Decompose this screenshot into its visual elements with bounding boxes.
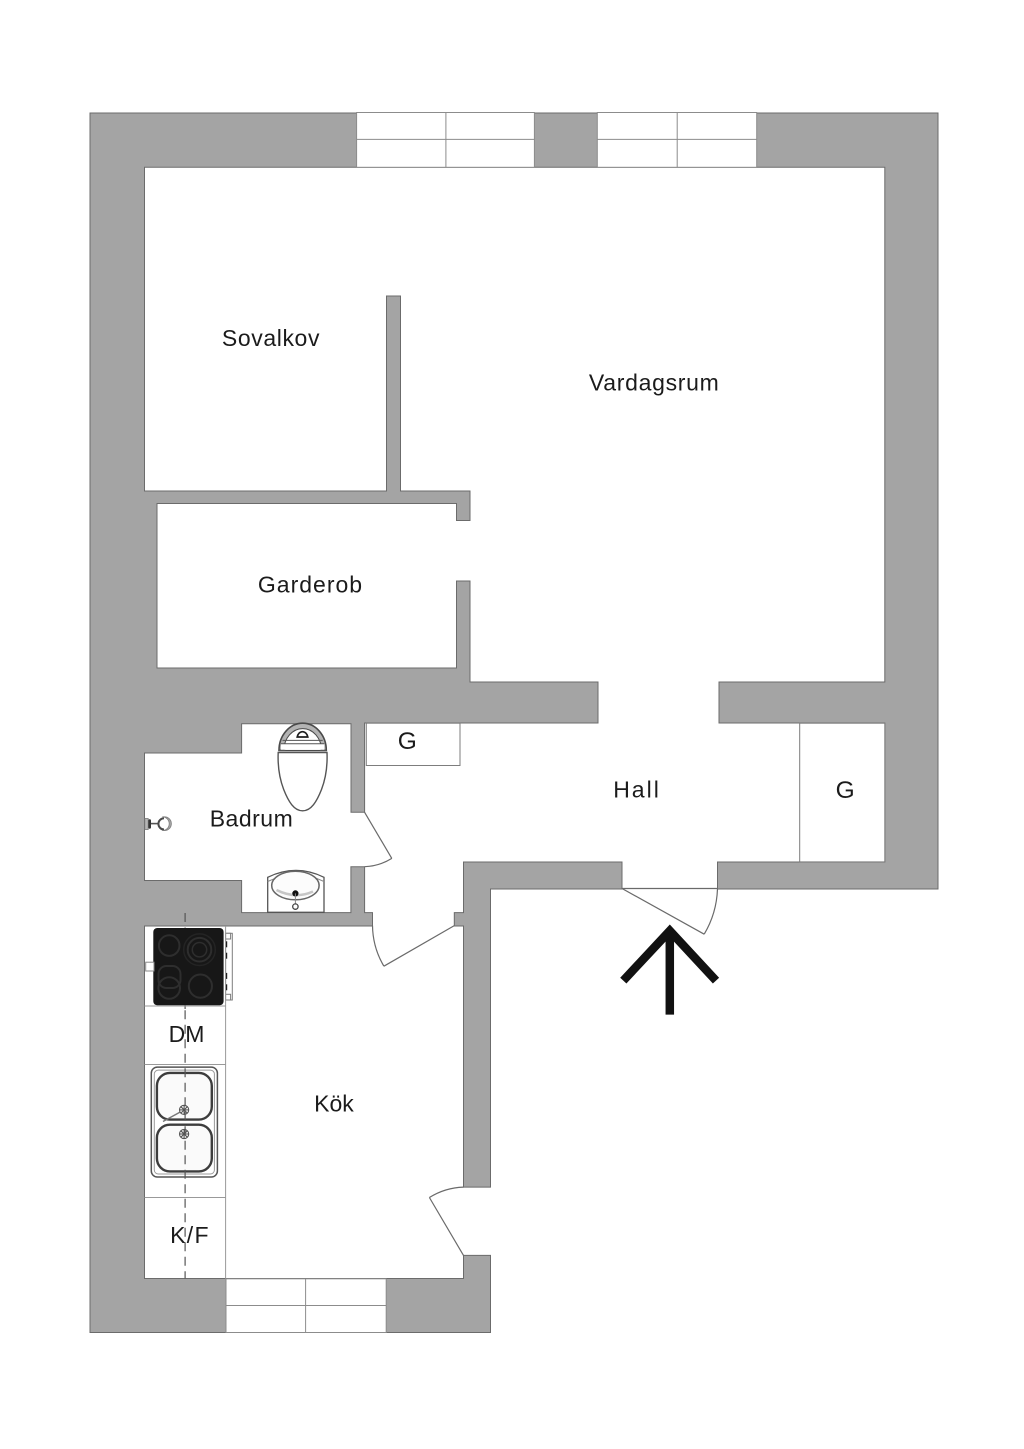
- svg-text:Kök: Kök: [314, 1091, 354, 1117]
- svg-text:K/F: K/F: [170, 1222, 210, 1248]
- svg-text:G: G: [836, 777, 855, 804]
- svg-text:Badrum: Badrum: [210, 806, 294, 832]
- svg-text:Garderob: Garderob: [258, 571, 363, 597]
- svg-text:Vardagsrum: Vardagsrum: [589, 370, 720, 396]
- svg-text:Hall: Hall: [613, 777, 661, 803]
- svg-text:G: G: [398, 728, 417, 755]
- svg-text:DM: DM: [169, 1021, 205, 1047]
- svg-text:Sovalkov: Sovalkov: [222, 325, 320, 351]
